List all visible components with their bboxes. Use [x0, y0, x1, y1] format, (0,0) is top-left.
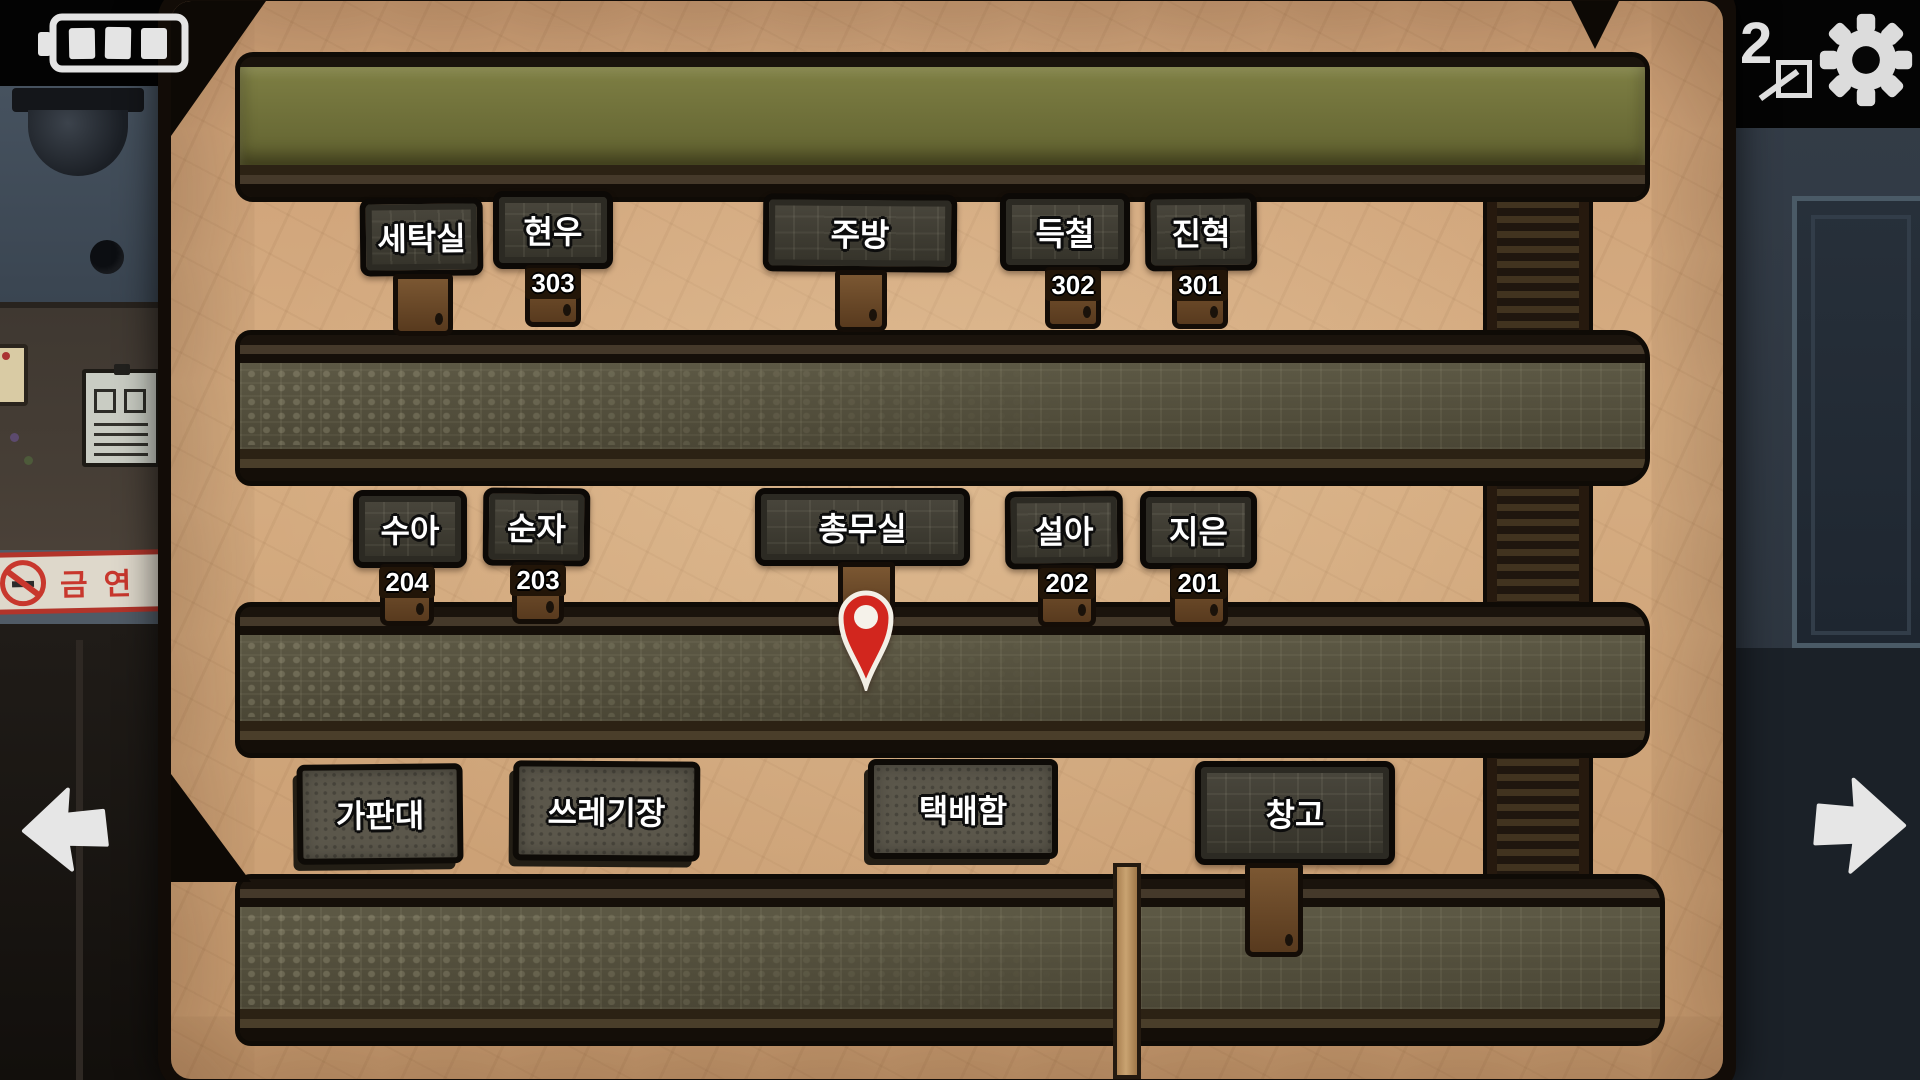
board-clip — [114, 364, 130, 375]
door-tab-202: 202 — [1038, 565, 1096, 627]
room-sign-seola[interactable]: 설아 — [1005, 491, 1124, 570]
settings-gear-icon[interactable] — [1818, 8, 1914, 112]
ground-walkway — [235, 874, 1665, 1046]
room-sign-label: 택배함 — [919, 786, 1007, 832]
door-tab-303: 303 — [525, 265, 581, 327]
photo-count-value: 2 — [1740, 10, 1772, 77]
game-screen: 금연 — [0, 0, 1920, 1080]
door-tab-301: 301 — [1172, 267, 1228, 329]
no-smoking-text: 금연 — [60, 559, 148, 605]
room-sign-label: 지은 — [1169, 507, 1228, 553]
room-sign-label: 설아 — [1034, 507, 1093, 553]
room-sign-label: 가판대 — [336, 791, 425, 838]
photo-count-icon[interactable]: 2 — [1742, 18, 1812, 104]
room-sign-parcel-box[interactable]: 택배함 — [868, 759, 1058, 859]
door-tab-204: 204 — [380, 564, 434, 626]
room-number: 303 — [531, 268, 574, 298]
door-tab-laundry — [393, 274, 453, 336]
roof-bar — [235, 52, 1650, 202]
room-sign-jinhyuk[interactable]: 진혁 — [1145, 193, 1258, 272]
room-sign-label: 순자 — [507, 504, 566, 551]
room-sign-jieun[interactable]: 지은 — [1140, 491, 1257, 569]
bulletin-board-icon — [82, 369, 160, 467]
no-smoking-sign: 금연 — [0, 549, 167, 615]
door-tab-302: 302 — [1045, 267, 1101, 329]
next-arrow-button[interactable] — [1808, 772, 1914, 882]
staircase-icon — [1487, 744, 1589, 886]
staircase-icon — [1487, 186, 1589, 346]
room-sign-warehouse[interactable]: 창고 — [1195, 761, 1395, 865]
panel-indicator — [2, 352, 10, 360]
staircase-icon — [1487, 474, 1589, 616]
background-left-wall: 금연 — [0, 0, 175, 1080]
room-sign-label: 득철 — [1036, 209, 1095, 255]
building-map: 세탁실 현우 303 주방 득철 302 진혁 301 — [158, 0, 1736, 1080]
floor2-walkway — [235, 602, 1650, 758]
cctv-bracket — [12, 88, 144, 112]
room-sign-label: 주방 — [830, 210, 889, 256]
location-pin-icon — [835, 583, 897, 691]
battery-icon — [36, 10, 192, 76]
room-sign-label: 수아 — [381, 506, 440, 552]
board-sketch — [94, 389, 116, 413]
map-corner-shadow — [171, 774, 251, 882]
room-sign-label: 진혁 — [1171, 209, 1230, 255]
prev-arrow-button[interactable] — [12, 784, 112, 878]
map-top-tear — [1569, 1, 1621, 49]
room-sign-label: 쓰레기장 — [547, 788, 665, 835]
board-sketch — [124, 389, 146, 413]
room-number: 202 — [1045, 568, 1088, 598]
door-tab-203: 203 — [512, 562, 564, 624]
no-smoking-icon — [0, 560, 46, 607]
map-parchment: 세탁실 현우 303 주방 득철 302 진혁 301 — [171, 1, 1723, 1079]
room-sign-sunja[interactable]: 순자 — [483, 488, 591, 567]
wall-dot — [24, 456, 33, 465]
background-door — [1792, 196, 1920, 648]
cctv-lens — [90, 240, 124, 274]
door-tab-warehouse — [1245, 863, 1303, 957]
room-sign-garbage-area[interactable]: 쓰레기장 — [513, 760, 701, 861]
room-sign-deukchul[interactable]: 득철 — [1000, 193, 1130, 271]
floor3-walkway — [235, 330, 1650, 486]
room-sign-label: 창고 — [1266, 790, 1325, 836]
room-number: 204 — [385, 567, 428, 597]
support-post — [1113, 863, 1141, 1079]
room-sign-laundry[interactable]: 세탁실 — [360, 197, 484, 276]
room-sign-newsstand[interactable]: 가판대 — [296, 763, 463, 865]
room-number: 301 — [1178, 270, 1221, 300]
room-sign-admin-office[interactable]: 총무실 — [755, 488, 970, 566]
wall-dot — [10, 433, 19, 442]
room-sign-hyunwoo[interactable]: 현우 — [493, 191, 613, 269]
room-sign-sua[interactable]: 수아 — [353, 490, 467, 568]
room-sign-label: 세탁실 — [377, 214, 466, 261]
room-number: 203 — [516, 565, 559, 595]
door-tab-kitchen — [835, 270, 887, 332]
room-sign-label: 현우 — [524, 207, 583, 253]
room-sign-kitchen[interactable]: 주방 — [763, 193, 958, 272]
room-sign-label: 총무실 — [818, 504, 906, 550]
board-text-lines — [94, 423, 148, 457]
door-tab-201: 201 — [1170, 565, 1228, 627]
room-number: 302 — [1051, 270, 1094, 300]
room-number: 201 — [1177, 568, 1220, 598]
